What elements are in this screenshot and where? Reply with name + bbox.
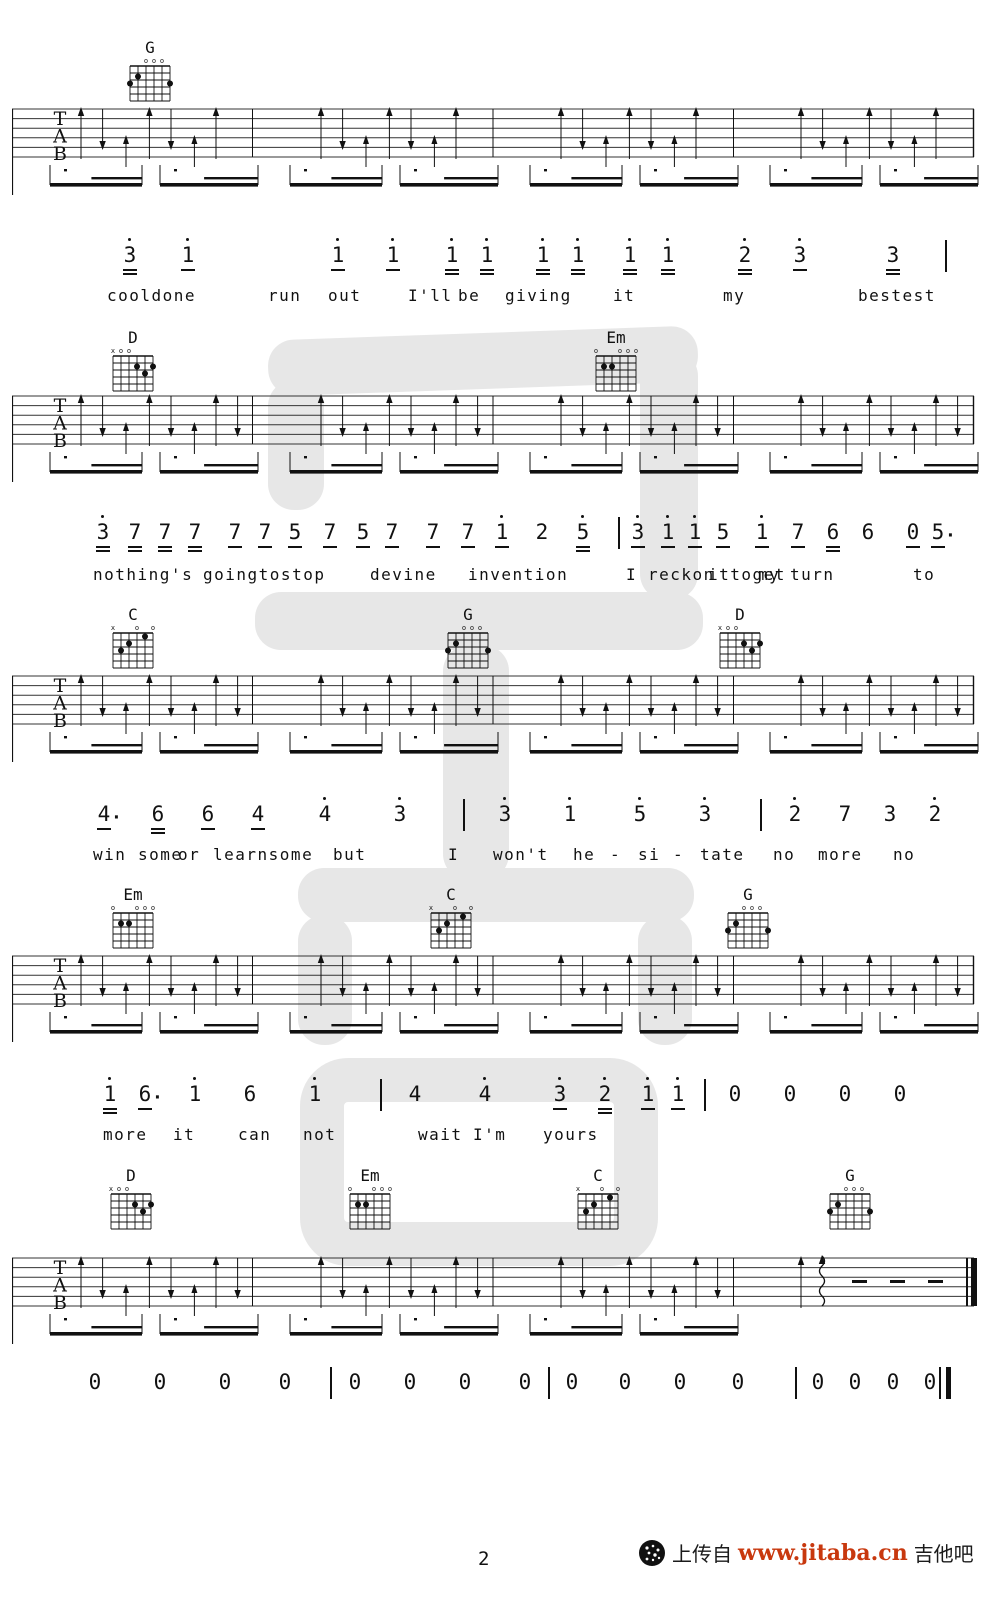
svg-text:o: o <box>135 624 139 632</box>
lyric-word: some <box>138 845 183 864</box>
lyric-word: my <box>758 565 780 584</box>
svg-text:o: o <box>478 624 482 632</box>
svg-text:o: o <box>125 1185 129 1193</box>
lyric-word: run <box>268 286 301 305</box>
lyric-word: to <box>913 565 935 584</box>
svg-text:o: o <box>726 624 730 632</box>
lyric-word: not <box>303 1125 336 1144</box>
melody-note: 7 <box>252 520 278 564</box>
chord-diagram: Cxoo <box>105 607 161 673</box>
melody-note: 0 <box>880 1370 906 1414</box>
svg-text:o: o <box>594 347 598 355</box>
lyric-word: no <box>773 845 795 864</box>
melody-note: 1 <box>655 243 681 287</box>
melody-note: 3 <box>880 243 906 287</box>
melody-note: 7 <box>122 520 148 564</box>
lyric-word: nothing's <box>93 565 193 584</box>
lyric-word: more <box>818 845 863 864</box>
svg-text:o: o <box>860 1185 864 1193</box>
chord-diagram: Gooo <box>720 887 776 953</box>
melody-note: 7 <box>455 520 481 564</box>
measure-barline <box>795 1367 797 1399</box>
measure-barline <box>945 240 947 272</box>
lyric-word: out <box>328 286 361 305</box>
lyric-word: tate <box>700 845 745 864</box>
svg-text:o: o <box>616 1185 620 1193</box>
melody-note: 5 <box>350 520 376 564</box>
lyric-word: - <box>610 845 621 864</box>
chord-name: C <box>570 1168 626 1184</box>
measure-barline <box>463 799 465 831</box>
lyric-word: - <box>673 845 684 864</box>
sheet-page: GoooTAB3111111111233cooldonerunoutI'llbe… <box>0 0 1000 1600</box>
chord-name: G <box>440 607 496 623</box>
svg-text:x: x <box>111 624 115 632</box>
melody-note: 1 <box>530 243 556 287</box>
melody-note: 1 <box>489 520 515 564</box>
melody-note: 0 <box>397 1370 423 1414</box>
svg-text:o: o <box>372 1185 376 1193</box>
chord-name: D <box>712 607 768 623</box>
lyric-word: can <box>238 1125 271 1144</box>
measure-barline <box>380 1079 382 1111</box>
melody-note: 6 <box>237 1082 263 1126</box>
melody-note: 4 <box>472 1082 498 1126</box>
svg-text:o: o <box>844 1185 848 1193</box>
measure-barline <box>704 1079 706 1111</box>
chord-name: D <box>103 1168 159 1184</box>
chord-name: Em <box>588 330 644 346</box>
melody-note: 7 <box>832 802 858 846</box>
melody-note: 5 <box>627 802 653 846</box>
page-number: 2 <box>478 1548 489 1570</box>
lyric-word: I <box>448 845 459 864</box>
melody-note: 1 <box>749 520 775 564</box>
lyric-word: bestest <box>858 286 936 305</box>
melody-note: 0 <box>832 1082 858 1126</box>
svg-text:x: x <box>111 347 115 355</box>
lyric-word: wait <box>418 1125 463 1144</box>
measure-barline <box>548 1367 550 1399</box>
chord-name: G <box>122 40 178 56</box>
melody-note: 1 <box>439 243 465 287</box>
svg-text:o: o <box>127 347 131 355</box>
svg-text:x: x <box>576 1185 580 1193</box>
melody-note: 0 <box>147 1370 173 1414</box>
melody-note: 5· <box>925 520 951 564</box>
chord-name: Em <box>342 1168 398 1184</box>
melody-note: 7 <box>420 520 446 564</box>
measure-barline <box>618 517 620 549</box>
melody-note: 7 <box>785 520 811 564</box>
lyric-word: it <box>173 1125 195 1144</box>
tab-stave: TAB <box>12 1252 988 1352</box>
svg-text:o: o <box>144 57 148 65</box>
svg-text:o: o <box>111 904 115 912</box>
melody-note: 3 <box>387 802 413 846</box>
jitaba-logo-icon <box>638 1539 666 1567</box>
melody-note: 4 <box>245 802 271 846</box>
svg-text:x: x <box>109 1185 113 1193</box>
svg-text:o: o <box>618 347 622 355</box>
melody-note: 3 <box>787 243 813 287</box>
chord-diagram: Dxoo <box>712 607 768 673</box>
lyric-word: reckon <box>648 565 715 584</box>
melody-note: 1 <box>655 520 681 564</box>
chord-diagram: Gooo <box>822 1168 878 1234</box>
melody-note: 3 <box>877 802 903 846</box>
svg-text:o: o <box>758 904 762 912</box>
melody-note: 1 <box>182 1082 208 1126</box>
melody-note: 1 <box>474 243 500 287</box>
melody-note: 3 <box>692 802 718 846</box>
melody-note: 0 <box>725 1370 751 1414</box>
melody-note: 2 <box>782 802 808 846</box>
tab-letter: B <box>53 143 67 165</box>
chord-name: Em <box>105 887 161 903</box>
chord-name: G <box>720 887 776 903</box>
svg-text:o: o <box>143 904 147 912</box>
svg-text:o: o <box>135 904 139 912</box>
lyric-word: devine <box>370 565 437 584</box>
melody-note: 7 <box>182 520 208 564</box>
lyric-word: yours <box>543 1125 599 1144</box>
chord-diagram: Emoooo <box>588 330 644 396</box>
melody-note: 2 <box>592 1082 618 1126</box>
svg-text:o: o <box>151 904 155 912</box>
melody-note: 0 <box>512 1370 538 1414</box>
svg-text:x: x <box>718 624 722 632</box>
melody-note: 1 <box>175 243 201 287</box>
svg-text:o: o <box>119 347 123 355</box>
melody-note: 6 <box>145 802 171 846</box>
svg-text:o: o <box>750 904 754 912</box>
svg-text:o: o <box>470 624 474 632</box>
melody-note: 0 <box>842 1370 868 1414</box>
melody-note: 0 <box>805 1370 831 1414</box>
melody-note: 0 <box>667 1370 693 1414</box>
chord-diagram: Dxoo <box>103 1168 159 1234</box>
melody-note: 3 <box>547 1082 573 1126</box>
melody-note: 2 <box>922 802 948 846</box>
lyric-word: win <box>93 845 126 864</box>
lyric-word: invention <box>468 565 568 584</box>
melody-note: 0 <box>342 1370 368 1414</box>
melody-note: 0 <box>452 1370 478 1414</box>
footer-credit: 上传自 www.jitaba.cn 吉他吧 <box>638 1538 974 1567</box>
tab-stave: TAB <box>12 103 988 203</box>
measure-barline <box>946 1367 951 1399</box>
melody-note: 1 <box>325 243 351 287</box>
lyric-word: he <box>573 845 595 864</box>
chord-diagram: Gooo <box>440 607 496 673</box>
melody-note: 2 <box>732 243 758 287</box>
tab-letter: B <box>53 710 67 732</box>
melody-note: 5 <box>570 520 596 564</box>
melody-note: 0 <box>559 1370 585 1414</box>
lyric-word: giving <box>505 286 572 305</box>
chord-name: C <box>423 887 479 903</box>
lyric-word: I'm <box>473 1125 506 1144</box>
tab-letter: B <box>53 430 67 452</box>
chord-diagram: Emoooo <box>342 1168 398 1234</box>
lyric-word: I'll <box>408 286 453 305</box>
lyric-word: learnsome <box>213 845 313 864</box>
svg-text:o: o <box>117 1185 121 1193</box>
melody-note: 1 <box>682 520 708 564</box>
svg-text:o: o <box>388 1185 392 1193</box>
melody-note: 0 <box>212 1370 238 1414</box>
melody-note: 6 <box>195 802 221 846</box>
chord-diagram: Cxoo <box>423 887 479 953</box>
lyric-word: cooldone <box>107 286 196 305</box>
melody-note: 3 <box>625 520 651 564</box>
lyric-word: more <box>103 1125 148 1144</box>
chord-diagram: Dxoo <box>105 330 161 396</box>
site-url[interactable]: www.jitaba.cn <box>738 1540 908 1566</box>
svg-text:o: o <box>600 1185 604 1193</box>
melody-note: 5 <box>710 520 736 564</box>
svg-text:o: o <box>742 904 746 912</box>
chord-diagram: Emoooo <box>105 887 161 953</box>
melody-note: 7 <box>379 520 405 564</box>
melody-note: 7 <box>222 520 248 564</box>
lyric-word: be <box>458 286 480 305</box>
tab-stave: TAB <box>12 390 988 490</box>
melody-note: 3 <box>117 243 143 287</box>
svg-text:o: o <box>152 57 156 65</box>
melody-note: 1 <box>97 1082 123 1126</box>
chord-diagram: Gooo <box>122 40 178 106</box>
measure-barline <box>330 1367 332 1399</box>
melody-note: 0 <box>612 1370 638 1414</box>
lyric-word: I <box>626 565 637 584</box>
chord-diagram: Cxoo <box>570 1168 626 1234</box>
melody-note: 1 <box>565 243 591 287</box>
lyric-word: goingtostop <box>203 565 325 584</box>
melody-note: 1 <box>557 802 583 846</box>
svg-text:o: o <box>151 624 155 632</box>
lyric-word: si <box>638 845 660 864</box>
tab-letter: B <box>53 1292 67 1314</box>
melody-note: 0 <box>722 1082 748 1126</box>
melody-note: 7 <box>152 520 178 564</box>
melody-note: 3 <box>90 520 116 564</box>
melody-note: 1 <box>617 243 643 287</box>
melody-note: 4· <box>91 802 117 846</box>
svg-text:o: o <box>380 1185 384 1193</box>
lyric-word: or <box>178 845 200 864</box>
tab-letter: B <box>53 990 67 1012</box>
melody-note: 4 <box>402 1082 428 1126</box>
svg-text:o: o <box>852 1185 856 1193</box>
svg-text:o: o <box>469 904 473 912</box>
svg-text:o: o <box>160 57 164 65</box>
svg-text:o: o <box>626 347 630 355</box>
lyric-word: no <box>893 845 915 864</box>
site-name: 吉他吧 <box>914 1538 974 1567</box>
chord-name: C <box>105 607 161 623</box>
melody-note: 3 <box>492 802 518 846</box>
melody-note: 5 <box>282 520 308 564</box>
measure-barline <box>760 799 762 831</box>
melody-note: 1 <box>665 1082 691 1126</box>
chord-name: D <box>105 330 161 346</box>
melody-note: 6 <box>820 520 846 564</box>
melody-note: 1 <box>380 243 406 287</box>
melody-note: 2 <box>529 520 555 564</box>
score: GoooTAB3111111111233cooldonerunoutI'llbe… <box>0 0 1000 1600</box>
melody-note: 7 <box>317 520 343 564</box>
svg-text:o: o <box>462 624 466 632</box>
melody-note: 4 <box>312 802 338 846</box>
svg-text:o: o <box>453 904 457 912</box>
tab-stave: TAB <box>12 670 988 770</box>
melody-note: 6· <box>132 1082 158 1126</box>
melody-note: 1 <box>635 1082 661 1126</box>
svg-text:o: o <box>734 624 738 632</box>
lyric-word: it <box>613 286 635 305</box>
lyric-word: my <box>723 286 745 305</box>
svg-text:o: o <box>634 347 638 355</box>
chord-name: G <box>822 1168 878 1184</box>
svg-text:x: x <box>429 904 433 912</box>
svg-text:o: o <box>348 1185 352 1193</box>
melody-note: 0 <box>777 1082 803 1126</box>
upload-text: 上传自 <box>672 1538 732 1567</box>
melody-note: 1 <box>302 1082 328 1126</box>
lyric-word: turn <box>790 565 835 584</box>
melody-note: 0 <box>82 1370 108 1414</box>
lyric-word: but <box>333 845 366 864</box>
melody-note: 6 <box>855 520 881 564</box>
melody-note: 0 <box>272 1370 298 1414</box>
lyric-word: won't <box>493 845 549 864</box>
measure-barline <box>939 1367 941 1399</box>
tab-stave: TAB <box>12 950 988 1050</box>
melody-note: 0 <box>900 520 926 564</box>
melody-note: 0 <box>887 1082 913 1126</box>
